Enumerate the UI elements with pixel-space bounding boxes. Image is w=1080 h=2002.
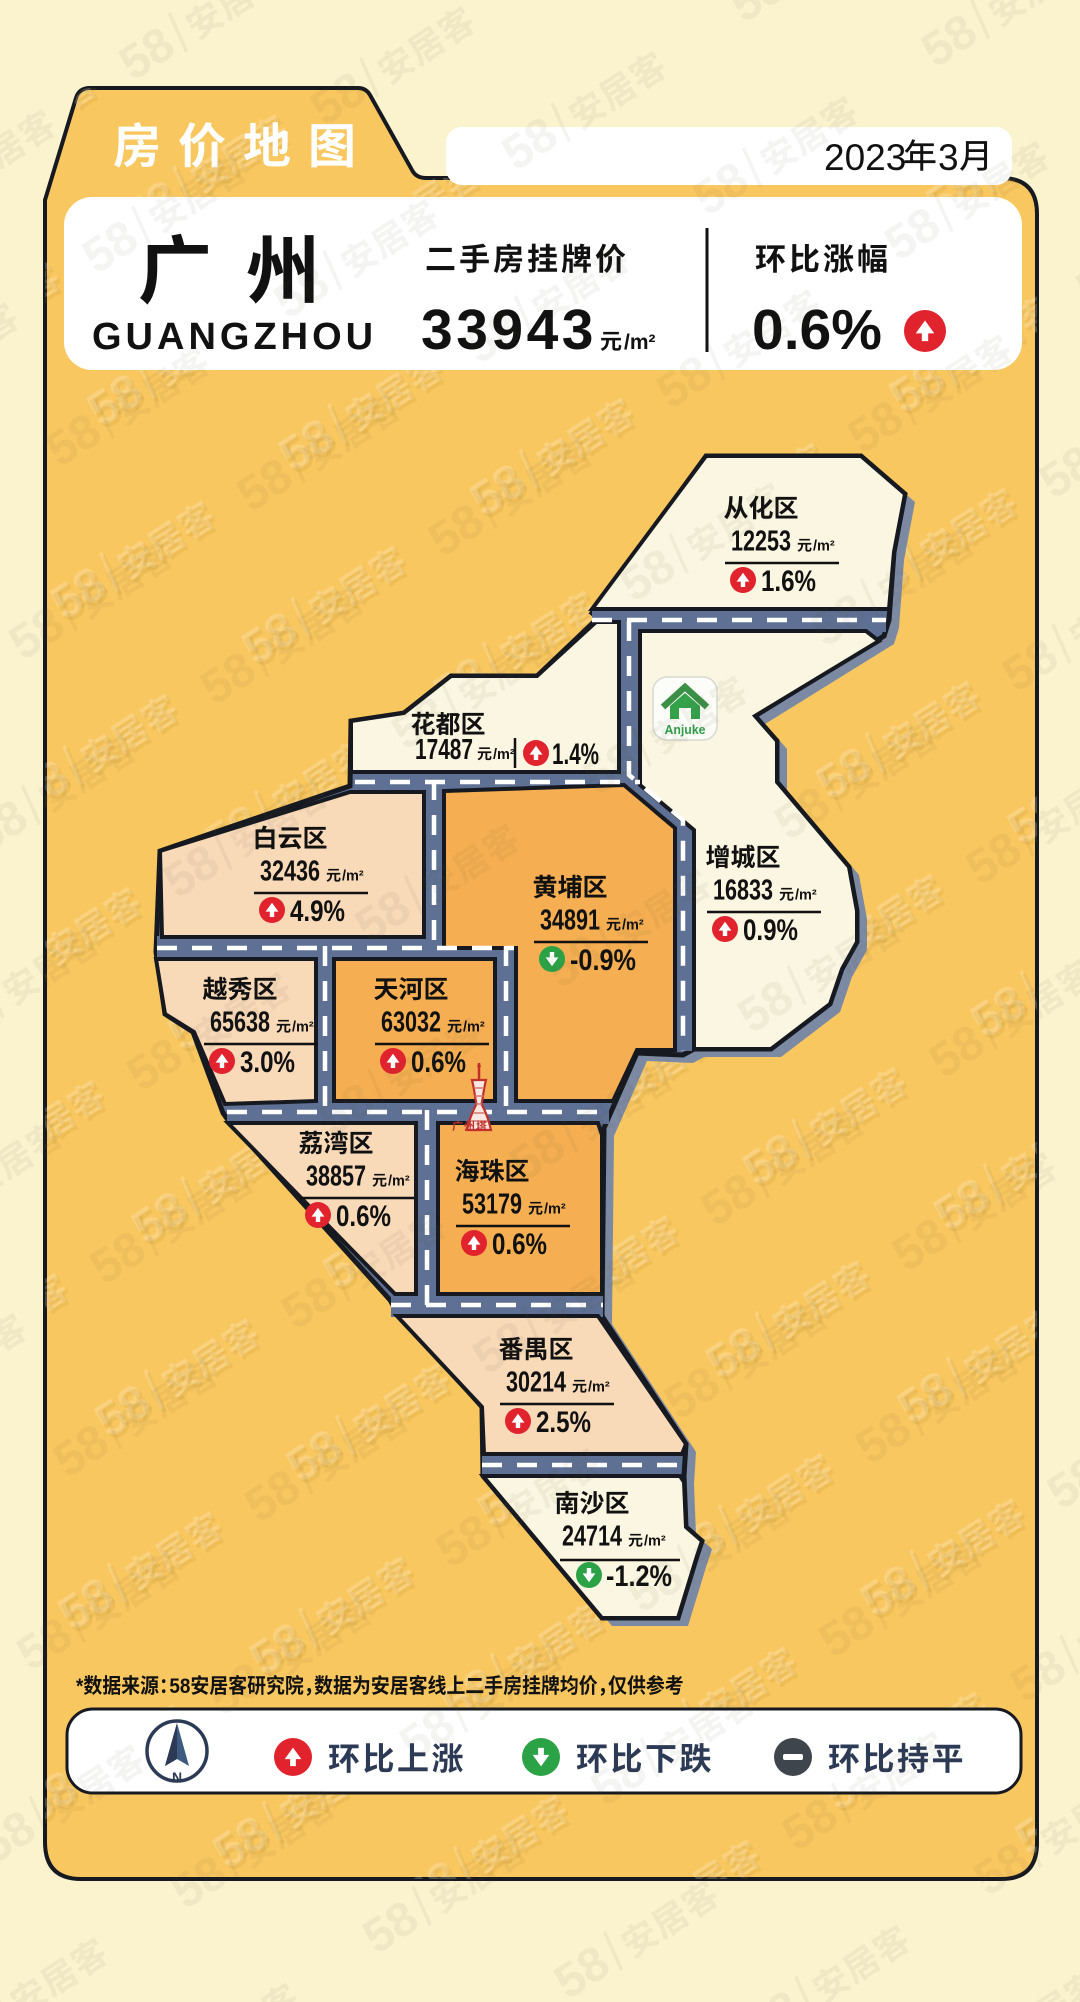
- svg-text:12253: 12253: [731, 526, 791, 558]
- svg-text:30214: 30214: [506, 1367, 566, 1399]
- svg-text:/m²: /m²: [795, 888, 817, 904]
- svg-text:/m²: /m²: [292, 1020, 314, 1036]
- svg-text:/m²: /m²: [624, 331, 656, 354]
- svg-text:/m²: /m²: [493, 747, 515, 763]
- svg-text:3: 3: [938, 137, 959, 178]
- svg-text:2.5%: 2.5%: [536, 1406, 591, 1439]
- svg-text:0.6%: 0.6%: [492, 1228, 547, 1261]
- svg-text:1.6%: 1.6%: [761, 565, 816, 598]
- svg-text:0.6%: 0.6%: [336, 1200, 391, 1233]
- svg-text:*: *: [76, 1675, 84, 1698]
- svg-text:24714: 24714: [562, 1521, 622, 1553]
- svg-text:16833: 16833: [713, 875, 773, 907]
- svg-text:/m²: /m²: [544, 1202, 566, 1218]
- svg-text:3.0%: 3.0%: [240, 1046, 295, 1079]
- svg-text:4.9%: 4.9%: [290, 895, 345, 928]
- svg-text:63032: 63032: [381, 1007, 441, 1039]
- svg-text:8: 8: [180, 1675, 191, 1698]
- svg-text:/m²: /m²: [588, 1380, 610, 1396]
- svg-text:53179: 53179: [462, 1189, 522, 1221]
- svg-text:34891: 34891: [540, 905, 600, 937]
- svg-text:32436: 32436: [260, 856, 320, 888]
- svg-text:/m²: /m²: [644, 1534, 666, 1550]
- svg-text:GUANGZHOU: GUANGZHOU: [92, 316, 377, 358]
- svg-text:/m²: /m²: [342, 869, 364, 885]
- svg-text:/m²: /m²: [813, 539, 835, 555]
- svg-text:5: 5: [169, 1675, 180, 1698]
- svg-text:0.9%: 0.9%: [743, 914, 798, 947]
- svg-text:/m²: /m²: [388, 1174, 410, 1190]
- svg-text:38857: 38857: [306, 1161, 366, 1193]
- svg-text:2023: 2023: [824, 137, 906, 178]
- svg-text:N: N: [172, 1769, 182, 1785]
